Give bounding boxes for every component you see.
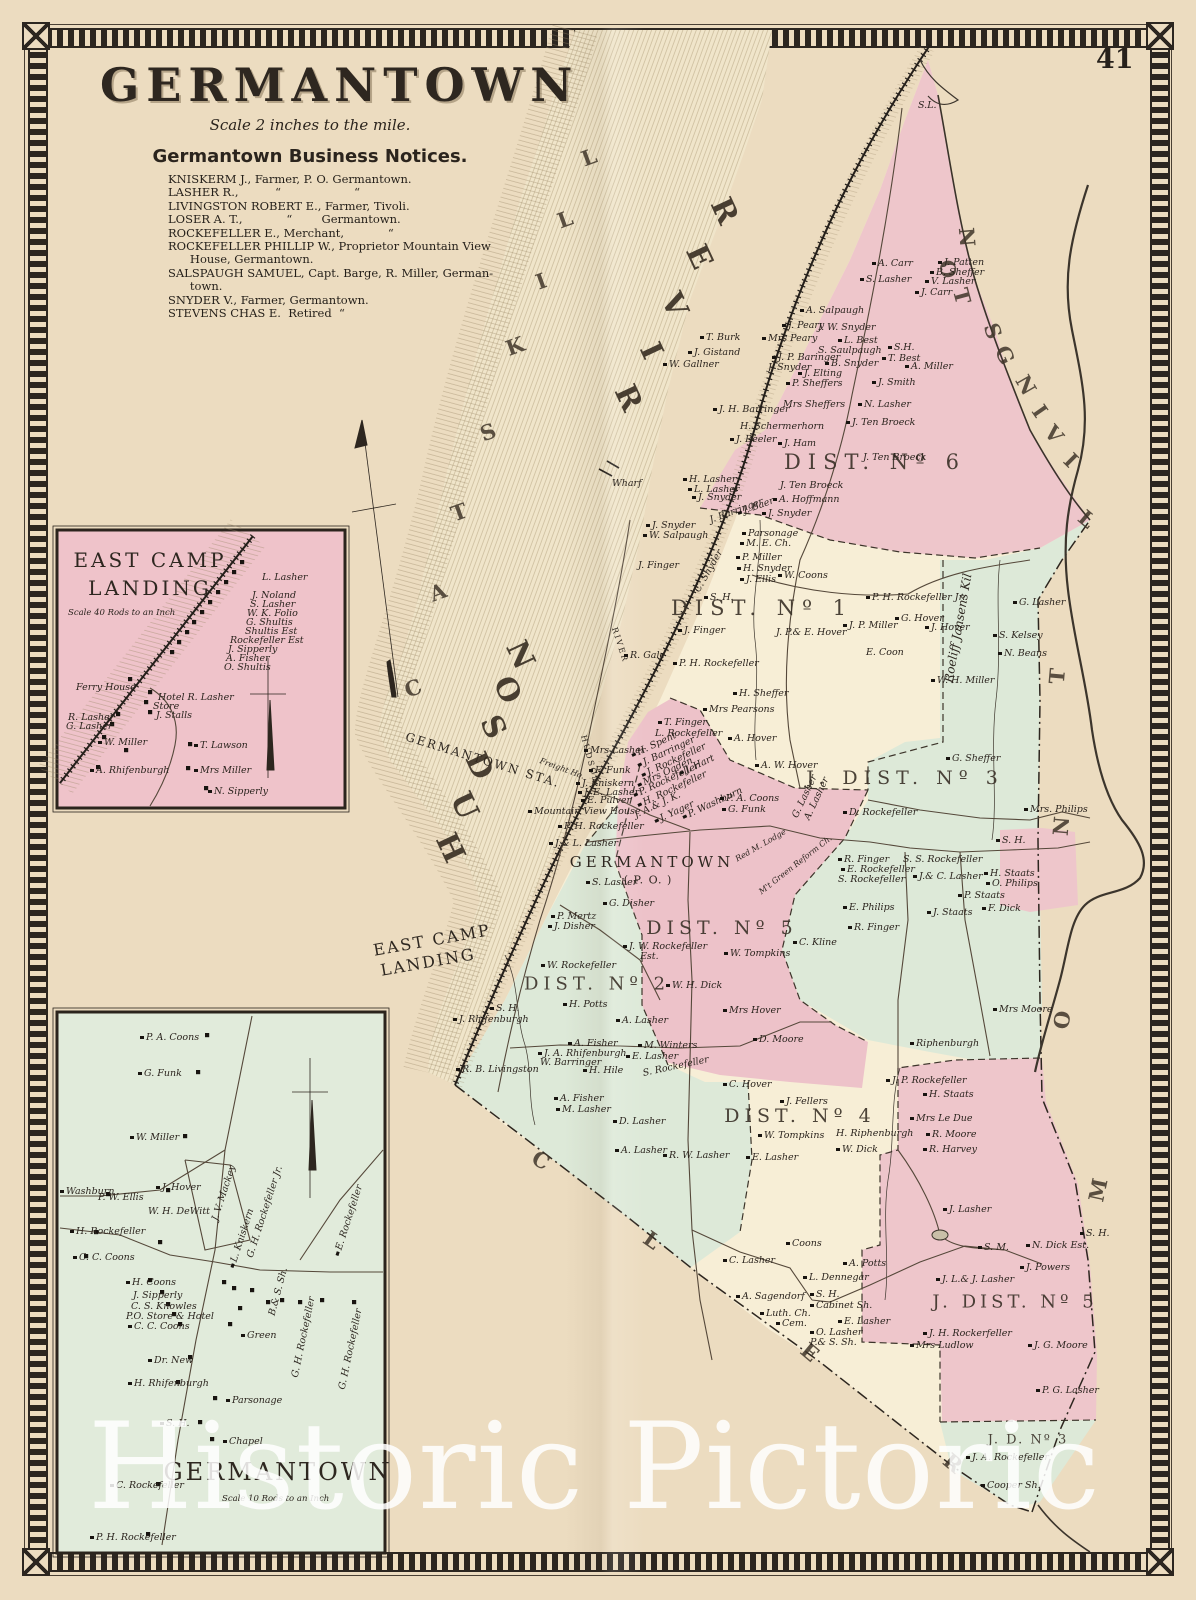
page-fold-shading: [565, 28, 645, 1572]
business-notices-list: KNISKERM J., Farmer, P. O. Germantown. L…: [168, 173, 570, 320]
map-title: GERMANTOWN: [100, 58, 570, 112]
map-scale-note: Scale 2 inches to the mile.: [100, 116, 520, 134]
watermark: Historic Pictoric: [88, 1398, 1148, 1537]
district-6: [700, 60, 1090, 558]
map-page: 41 GERMANTOWN Scale 2 inches to the mile…: [0, 0, 1196, 1600]
page-number: 41: [1096, 44, 1134, 75]
pond: [932, 1230, 948, 1240]
inset-east-camp: [53, 526, 349, 812]
title-block: GERMANTOWN Scale 2 inches to the mile. G…: [100, 58, 570, 320]
business-notices-heading: Germantown Business Notices.: [100, 146, 520, 167]
